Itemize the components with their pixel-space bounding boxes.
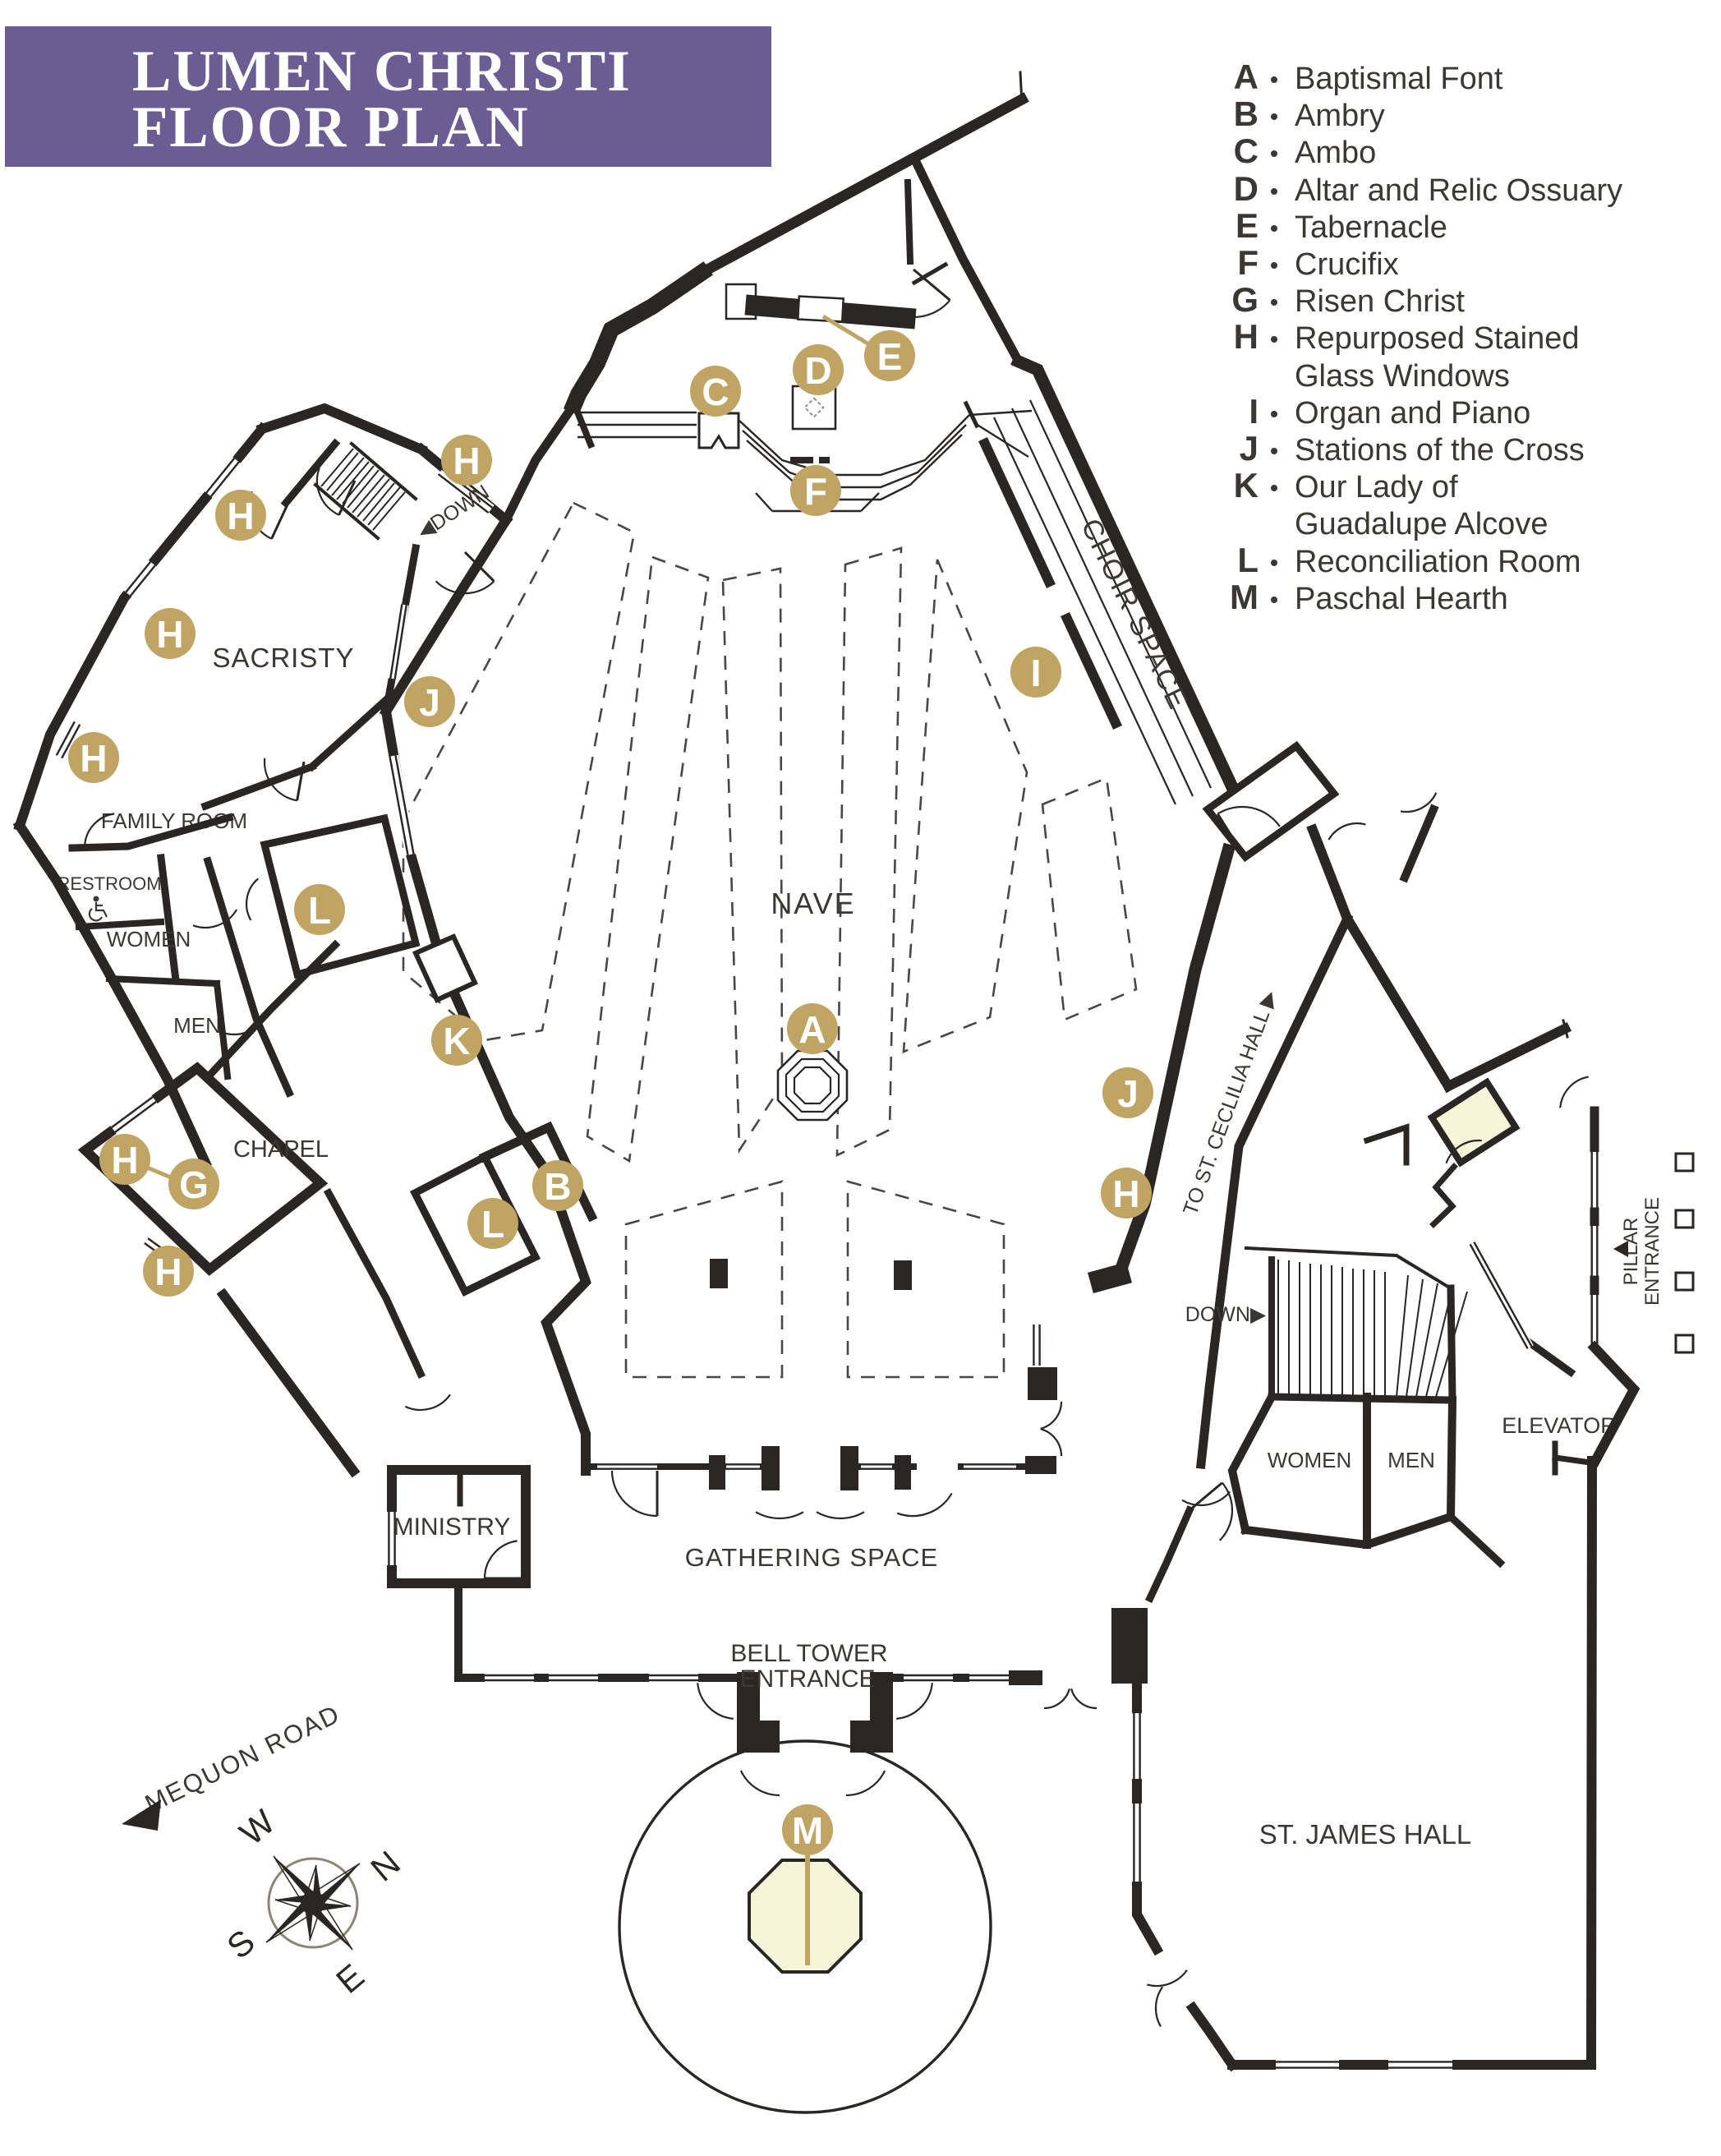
svg-text:D: D bbox=[1234, 169, 1259, 208]
svg-text:Baptismal Font: Baptismal Font bbox=[1295, 62, 1503, 96]
svg-text:Paschal Hearth: Paschal Hearth bbox=[1295, 582, 1508, 616]
svg-text:Altar and Relic Ossuary: Altar and Relic Ossuary bbox=[1295, 173, 1622, 208]
svg-text:L: L bbox=[1237, 541, 1259, 579]
svg-text:H: H bbox=[1234, 317, 1259, 356]
svg-text:ST. JAMES HALL: ST. JAMES HALL bbox=[1259, 1819, 1472, 1850]
svg-text:Guadalupe Alcove: Guadalupe Alcove bbox=[1295, 507, 1548, 541]
svg-text:Reconciliation Room: Reconciliation Room bbox=[1295, 545, 1581, 579]
svg-text:J: J bbox=[419, 681, 440, 724]
svg-text:MEN: MEN bbox=[1387, 1448, 1435, 1472]
svg-text:Risen Christ: Risen Christ bbox=[1295, 284, 1465, 319]
svg-text:H: H bbox=[154, 1251, 182, 1293]
svg-text:G: G bbox=[179, 1163, 209, 1206]
svg-text:F: F bbox=[1237, 243, 1259, 282]
svg-text:I: I bbox=[1031, 652, 1042, 694]
svg-text:WOMEN: WOMEN bbox=[1268, 1448, 1352, 1472]
svg-text:MEN: MEN bbox=[173, 1013, 221, 1038]
svg-text:Crucifix: Crucifix bbox=[1295, 247, 1399, 282]
svg-text:CHAPEL: CHAPEL bbox=[233, 1136, 329, 1163]
svg-text:Glass Windows: Glass Windows bbox=[1295, 359, 1510, 394]
svg-text:WOMEN: WOMEN bbox=[107, 927, 191, 951]
svg-text:SACRISTY: SACRISTY bbox=[212, 643, 354, 673]
svg-text:L: L bbox=[308, 889, 331, 932]
svg-text:H: H bbox=[453, 440, 480, 482]
svg-text:D: D bbox=[804, 349, 831, 392]
svg-text:H: H bbox=[1112, 1172, 1139, 1215]
svg-text:G: G bbox=[1231, 280, 1259, 319]
svg-text:L: L bbox=[481, 1203, 504, 1246]
svg-text:Ambo: Ambo bbox=[1295, 136, 1376, 170]
svg-text:DOWN▶: DOWN▶ bbox=[1185, 1303, 1267, 1326]
svg-text:LUMEN CHRISTI: LUMEN CHRISTI bbox=[132, 39, 632, 104]
svg-text:J: J bbox=[1240, 429, 1259, 468]
svg-text:GATHERING SPACE: GATHERING SPACE bbox=[685, 1543, 938, 1572]
svg-text:H: H bbox=[80, 737, 107, 780]
svg-text:Stations of the Cross: Stations of the Cross bbox=[1295, 433, 1585, 468]
svg-text:A: A bbox=[798, 1008, 826, 1051]
svg-text:F: F bbox=[804, 470, 827, 513]
svg-text:E: E bbox=[877, 335, 903, 378]
svg-text:ENTRANCE: ENTRANCE bbox=[1641, 1197, 1663, 1306]
svg-text:ENTRANCE: ENTRANCE bbox=[739, 1665, 875, 1693]
svg-text:B: B bbox=[1234, 94, 1259, 133]
svg-text:E: E bbox=[1236, 206, 1259, 245]
svg-text:Organ and Piano: Organ and Piano bbox=[1295, 396, 1530, 431]
svg-text:I: I bbox=[1249, 392, 1259, 431]
svg-text:Our Lady of: Our Lady of bbox=[1295, 470, 1458, 504]
svg-text:M: M bbox=[1230, 578, 1259, 616]
svg-text:RESTROOM: RESTROOM bbox=[57, 873, 161, 894]
svg-text:H: H bbox=[111, 1139, 138, 1182]
svg-text:Repurposed Stained: Repurposed Stained bbox=[1295, 321, 1579, 356]
svg-text:A: A bbox=[1234, 58, 1259, 96]
svg-text:H: H bbox=[227, 495, 254, 537]
svg-text:Ambry: Ambry bbox=[1295, 99, 1385, 133]
svg-text:C: C bbox=[1234, 131, 1259, 170]
svg-text:M: M bbox=[792, 1809, 823, 1852]
svg-text:NAVE: NAVE bbox=[771, 887, 855, 920]
svg-text:ELEVATOR: ELEVATOR bbox=[1502, 1413, 1617, 1438]
svg-text:H: H bbox=[156, 613, 183, 656]
svg-text:FLOOR PLAN: FLOOR PLAN bbox=[132, 95, 529, 159]
svg-text:MINISTRY: MINISTRY bbox=[393, 1513, 511, 1541]
svg-text:K: K bbox=[443, 1020, 470, 1062]
svg-text:J: J bbox=[1117, 1072, 1139, 1115]
svg-text:BELL TOWER: BELL TOWER bbox=[730, 1640, 887, 1667]
svg-text:K: K bbox=[1234, 466, 1259, 504]
svg-text:C: C bbox=[702, 371, 729, 413]
svg-text:B: B bbox=[544, 1165, 571, 1208]
svg-text:Tabernacle: Tabernacle bbox=[1295, 210, 1447, 245]
